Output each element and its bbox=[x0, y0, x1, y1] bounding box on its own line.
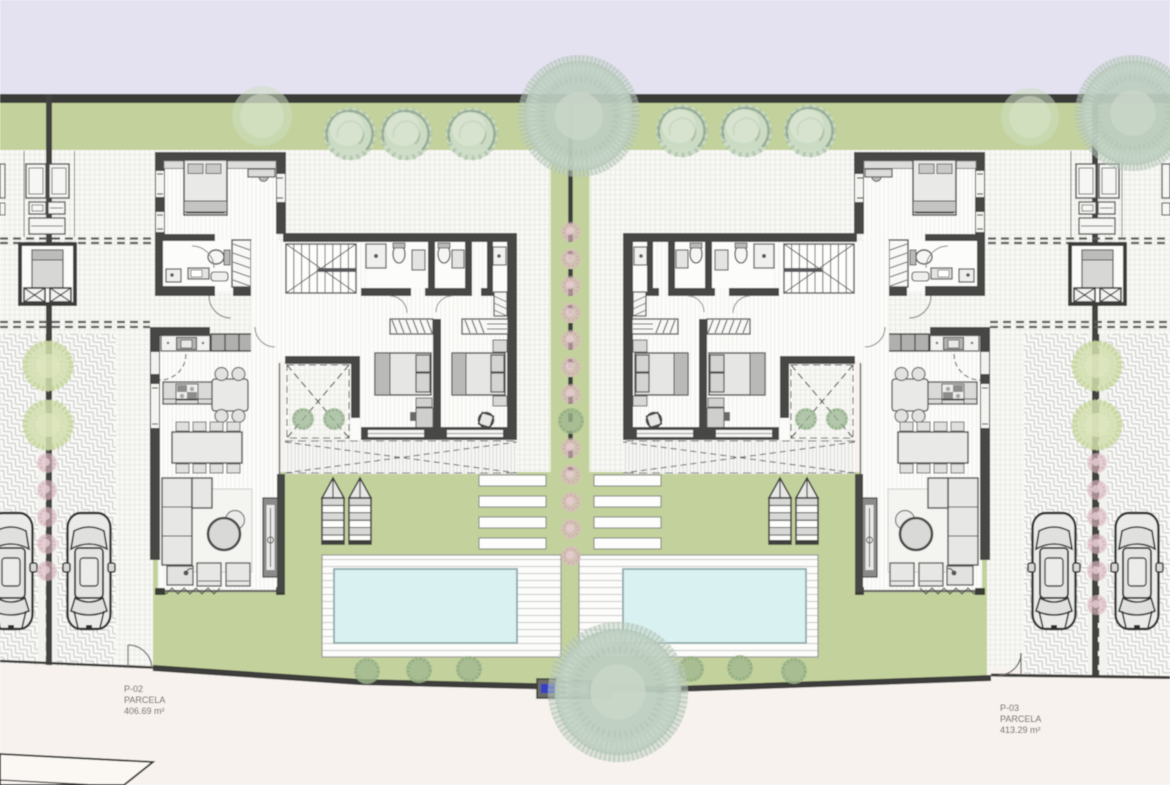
svg-text:PARCELA: PARCELA bbox=[1000, 714, 1041, 724]
svg-text:413.29 m²: 413.29 m² bbox=[1000, 725, 1041, 735]
svg-text:P-02: P-02 bbox=[124, 684, 143, 694]
svg-text:P-03: P-03 bbox=[1000, 703, 1019, 713]
svg-text:PARCELA: PARCELA bbox=[124, 695, 165, 705]
svg-text:406.69 m²: 406.69 m² bbox=[124, 706, 165, 716]
